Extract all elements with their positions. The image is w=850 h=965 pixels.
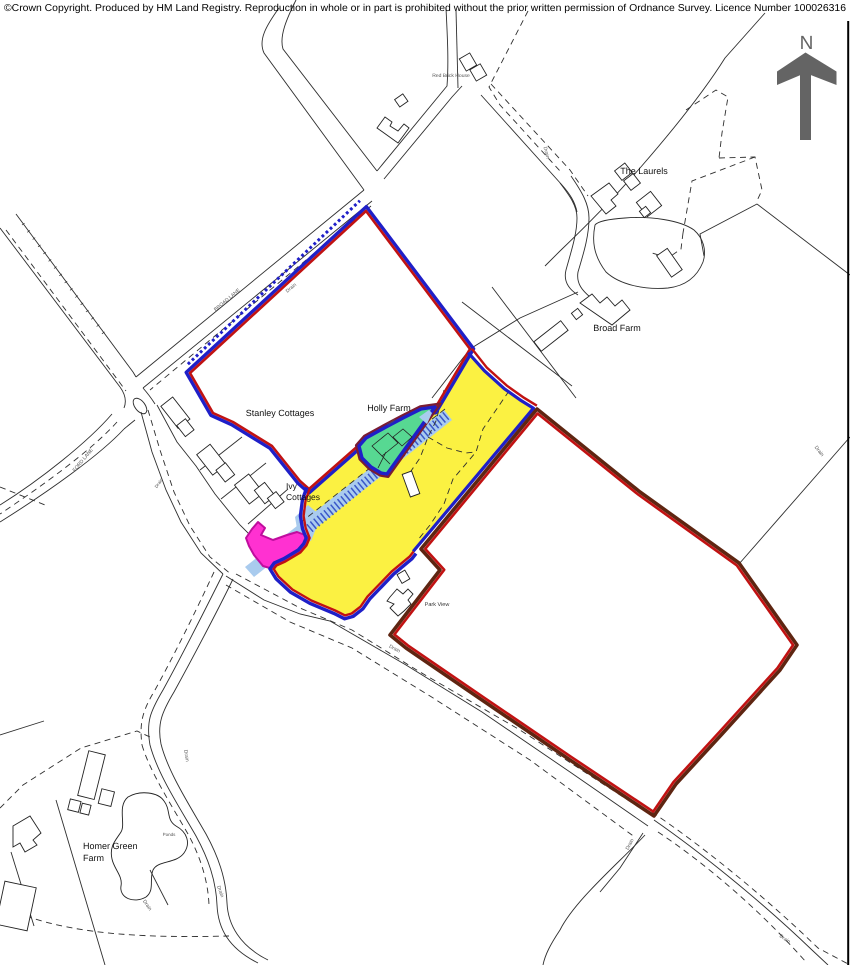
svg-text:Farm: Farm [83, 853, 104, 863]
svg-text:©Crown Copyright. Produced by: ©Crown Copyright. Produced by HM Land Re… [4, 3, 846, 14]
svg-text:Red Brick House: Red Brick House [432, 73, 470, 79]
svg-text:Holly Farm: Holly Farm [367, 403, 411, 413]
svg-text:Park View: Park View [425, 602, 450, 608]
svg-text:Ivy: Ivy [286, 481, 298, 491]
svg-text:Ponds: Ponds [163, 832, 177, 837]
svg-text:The Laurels: The Laurels [620, 166, 668, 176]
svg-text:Broad Farm: Broad Farm [593, 323, 641, 333]
svg-text:Homer Green: Homer Green [83, 841, 138, 851]
svg-text:Stanley Cottages: Stanley Cottages [246, 408, 315, 418]
svg-text:N: N [800, 33, 814, 54]
svg-text:Cottages: Cottages [286, 492, 320, 502]
